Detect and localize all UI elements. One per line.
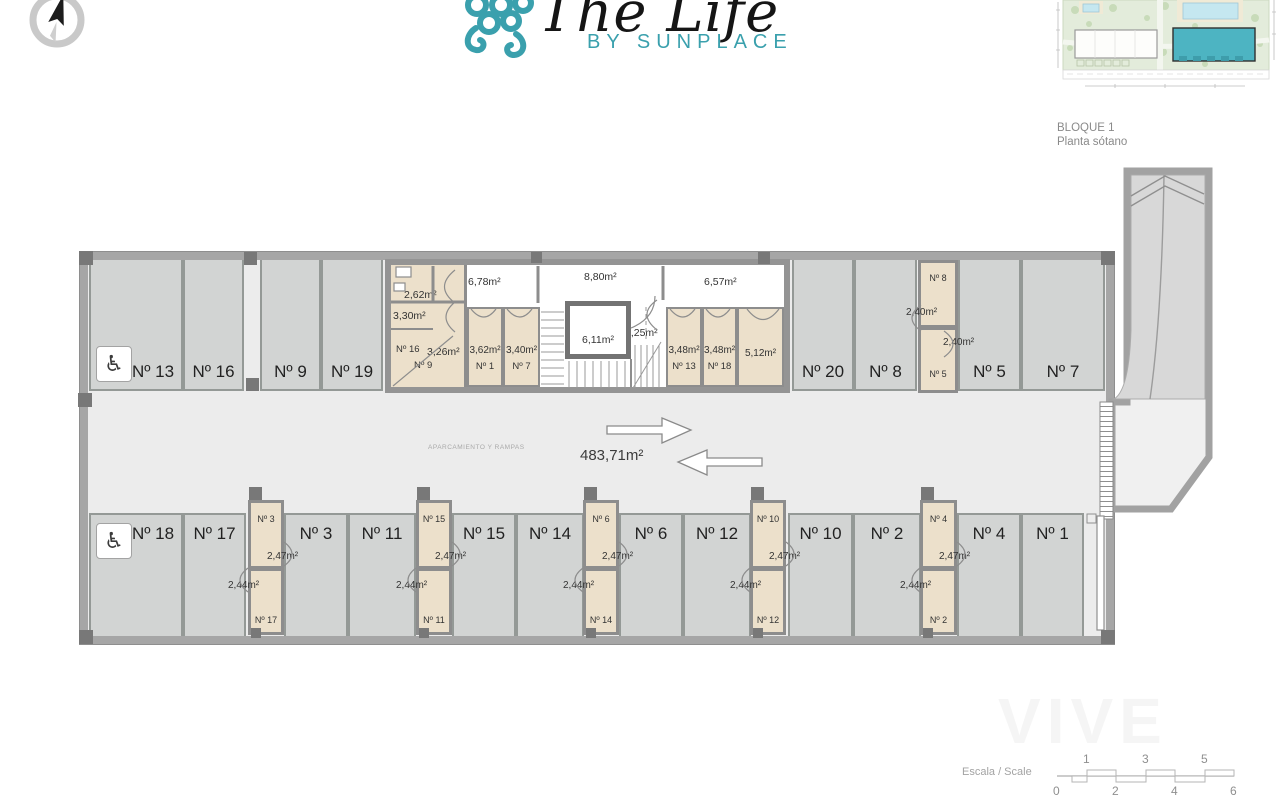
parking-stall: Nº 17 [183, 513, 246, 636]
storage-unit-label: Nº 4 [923, 514, 954, 524]
parking-label: Nº 5 [973, 362, 1006, 382]
parking-label: Nº 17 [193, 524, 235, 544]
storage-room: 3,40m² Nº 7 [503, 307, 540, 387]
parking-label: Nº 7 [1047, 362, 1080, 382]
scale-caption: Escala / Scale [962, 766, 1032, 778]
storage-unit-area: 2,44m² [396, 580, 427, 591]
parking-stall: Nº 15 [452, 513, 516, 636]
room-number: Nº 18 [704, 361, 735, 372]
storage-column: Nº 4 2,47m² 2,44m² Nº 2 [920, 500, 957, 635]
parking-label: Nº 6 [635, 524, 668, 544]
aisle-caption: APARCAMIENTO Y RAMPAS [428, 444, 525, 451]
parking-stall: Nº 10 [788, 513, 853, 636]
scale-tick: 0 [1053, 784, 1060, 798]
storage-unit-area: 2,44m² [900, 580, 931, 591]
storage-divider-wall [918, 325, 958, 330]
storage-divider-wall [920, 566, 957, 571]
parking-label: Nº 16 [192, 362, 234, 382]
room-number: Nº 13 [668, 361, 700, 372]
ramp [1100, 171, 1209, 519]
storage-unit-label: Nº 6 [586, 514, 616, 524]
storage-column: Nº 10 2,47m² 2,44m² Nº 12 [750, 500, 786, 635]
storage-divider-wall [750, 566, 786, 571]
parking-stall: Nº 14 [516, 513, 584, 636]
room-number: Nº 16 [396, 344, 420, 355]
parking-stall: Nº 12 [683, 513, 751, 636]
sunplace-logo-icon [452, 0, 534, 64]
parking-label: Nº 4 [973, 524, 1006, 544]
block-label: BLOQUE 1 [1057, 121, 1127, 135]
storage-column: Nº 15 2,47m² 2,44m² Nº 11 [416, 500, 452, 635]
elevator-area: 6,11m² [582, 334, 614, 346]
storage-unit-label: Nº 12 [753, 615, 783, 625]
storage-room: 5,12m² [737, 307, 784, 387]
parking-label: Nº 8 [869, 362, 902, 382]
storage-unit-area: 2,44m² [730, 580, 761, 591]
parking-label: Nº 13 [132, 362, 174, 382]
parking-label: Nº 18 [132, 524, 174, 544]
storage-unit-label: Nº 15 [419, 514, 449, 524]
parking-label: Nº 20 [802, 362, 844, 382]
storage-unit-label: Nº 11 [419, 615, 449, 625]
room-area: 3,62m² [469, 345, 501, 356]
storage-unit-label: Nº 3 [251, 514, 281, 524]
corridor-area: 6,57m² [704, 276, 737, 288]
elevator-shaft: 6,11m² [565, 301, 631, 359]
parking-stall: Nº 11 [348, 513, 416, 636]
storage-column: Nº 3 2,47m² 2,44m² Nº 17 [248, 500, 284, 635]
room-area: 3,40m² [505, 345, 538, 356]
scale-bar [1057, 770, 1234, 782]
parking-stall: Nº 2 [853, 513, 921, 636]
room-area: 3,48m² [668, 345, 700, 356]
storage-column: Nº 6 2,47m² 2,44m² Nº 14 [583, 500, 619, 635]
room-area: 2,62m² [404, 289, 437, 301]
parking-label: Nº 10 [799, 524, 841, 544]
storage-room: 3,48m² Nº 13 [666, 307, 702, 387]
storage-unit-area: 2,40m² [906, 307, 937, 318]
storage-room: 3,62m² Nº 1 [467, 307, 503, 387]
corridor-area: 6,78m² [468, 276, 501, 288]
aisle-area-label: 483,71m² [580, 447, 643, 464]
storage-unit-area: 2,44m² [563, 580, 594, 591]
storage-unit-label: Nº 17 [251, 615, 281, 625]
parking-stall: Nº 1 [1021, 513, 1084, 636]
scale-tick: 4 [1171, 784, 1178, 798]
compass-icon [24, 0, 90, 58]
room-number: Nº 9 [414, 360, 432, 371]
floor-plan-page: The Life BY SUNPLACE [0, 0, 1280, 800]
storage-room-block: 2,62m² 3,30m² Nº 16 3,26m² Nº 9 6,78m² 8… [385, 259, 790, 393]
storage-column: Nº 8 2,40m² 2,40m² Nº 5 [918, 260, 958, 393]
storage-unit-label: Nº 2 [923, 615, 954, 625]
parking-stall: Nº 6 [619, 513, 683, 636]
storage-unit-label: Nº 5 [921, 369, 955, 379]
storage-unit-area: 2,40m² [943, 337, 974, 348]
scale-tick: 6 [1230, 784, 1237, 798]
scale-tick: 2 [1112, 784, 1119, 798]
storage-unit-label: Nº 8 [921, 273, 955, 283]
storage-unit-label: Nº 10 [753, 514, 783, 524]
room-number: Nº 7 [505, 361, 538, 372]
parking-label: Nº 9 [274, 362, 307, 382]
room-area: 3,26m² [427, 346, 460, 358]
parking-label: Nº 14 [529, 524, 571, 544]
corridor-area: 8,80m² [584, 271, 617, 283]
storage-room: 3,48m² Nº 18 [702, 307, 737, 387]
site-keyplan [1055, 0, 1280, 100]
parking-stall: Nº 8 [854, 260, 917, 391]
parking-label: Nº 3 [300, 524, 333, 544]
storage-divider-wall [416, 566, 452, 571]
parking-stall: ♿ Nº 13 [89, 260, 183, 391]
parking-label: Nº 15 [463, 524, 505, 544]
parking-label: Nº 19 [331, 362, 373, 382]
room-area: 3,30m² [393, 310, 426, 322]
parking-stall: Nº 5 [958, 260, 1021, 391]
parking-stall: Nº 7 [1021, 260, 1105, 391]
parking-stall: ♿ Nº 18 [89, 513, 183, 636]
wheelchair-icon: ♿ [96, 346, 132, 382]
storage-unit-area: 2,47m² [939, 551, 970, 562]
storage-unit-area: 2,47m² [602, 551, 633, 562]
parking-stall: Nº 20 [792, 260, 854, 391]
room-area: 5,12m² [739, 348, 782, 359]
watermark: VIVE [998, 684, 1168, 758]
parking-label: Nº 12 [696, 524, 738, 544]
storage-unit-area: 2,47m² [769, 551, 800, 562]
parking-stall: Nº 16 [183, 260, 244, 391]
storage-unit-area: 2,47m² [435, 551, 466, 562]
logo-subtitle: BY SUNPLACE [587, 31, 793, 54]
storage-divider-wall [248, 566, 284, 571]
parking-label: Nº 2 [871, 524, 904, 544]
parking-stall: Nº 4 [957, 513, 1021, 636]
storage-unit-area: 2,47m² [267, 551, 298, 562]
scale-tick: 5 [1201, 752, 1208, 766]
keyplan-caption: BLOQUE 1 Planta sótano [1057, 121, 1127, 150]
storage-divider-wall [583, 566, 619, 571]
parking-stall: Nº 9 [260, 260, 321, 391]
parking-stall: Nº 3 [284, 513, 348, 636]
parking-stall: Nº 19 [321, 260, 383, 391]
parking-label: Nº 11 [362, 524, 403, 544]
floor-label: Planta sótano [1057, 135, 1127, 149]
storage-unit-label: Nº 14 [586, 615, 616, 625]
room-area: 3,48m² [704, 345, 735, 356]
parking-label: Nº 1 [1036, 524, 1069, 544]
wheelchair-icon: ♿ [96, 523, 132, 559]
room-number: Nº 1 [469, 361, 501, 372]
storage-unit-area: 2,44m² [228, 580, 259, 591]
